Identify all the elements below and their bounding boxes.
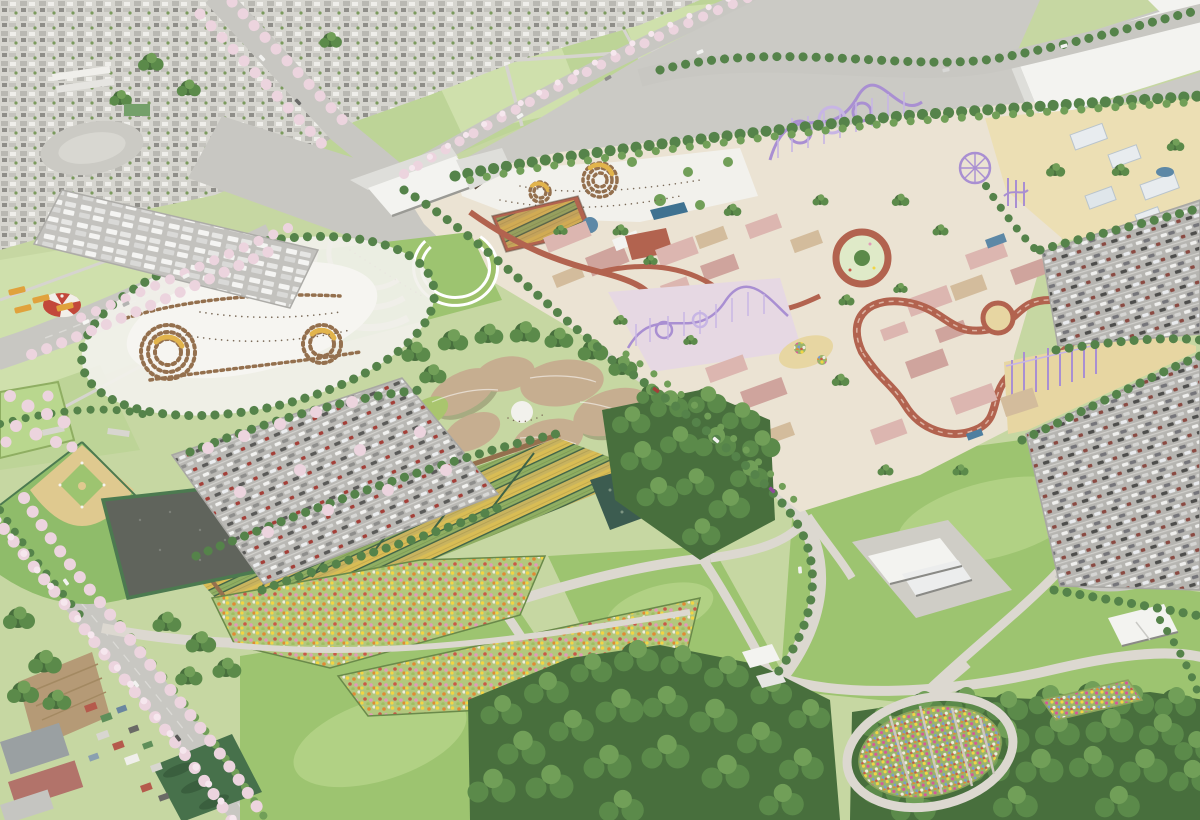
ferris-wheel bbox=[960, 153, 990, 183]
aerial-rendering: Aerial rendering of a planned theme park… bbox=[0, 0, 1200, 820]
central-circle-plaza bbox=[836, 232, 888, 284]
ring-track bbox=[983, 303, 1013, 333]
petal-courtyard bbox=[511, 401, 533, 423]
site-plan-svg bbox=[0, 0, 1200, 820]
ne-pond bbox=[1156, 167, 1174, 177]
slide-tower bbox=[1004, 178, 1028, 208]
green-roof-gym bbox=[124, 104, 150, 116]
